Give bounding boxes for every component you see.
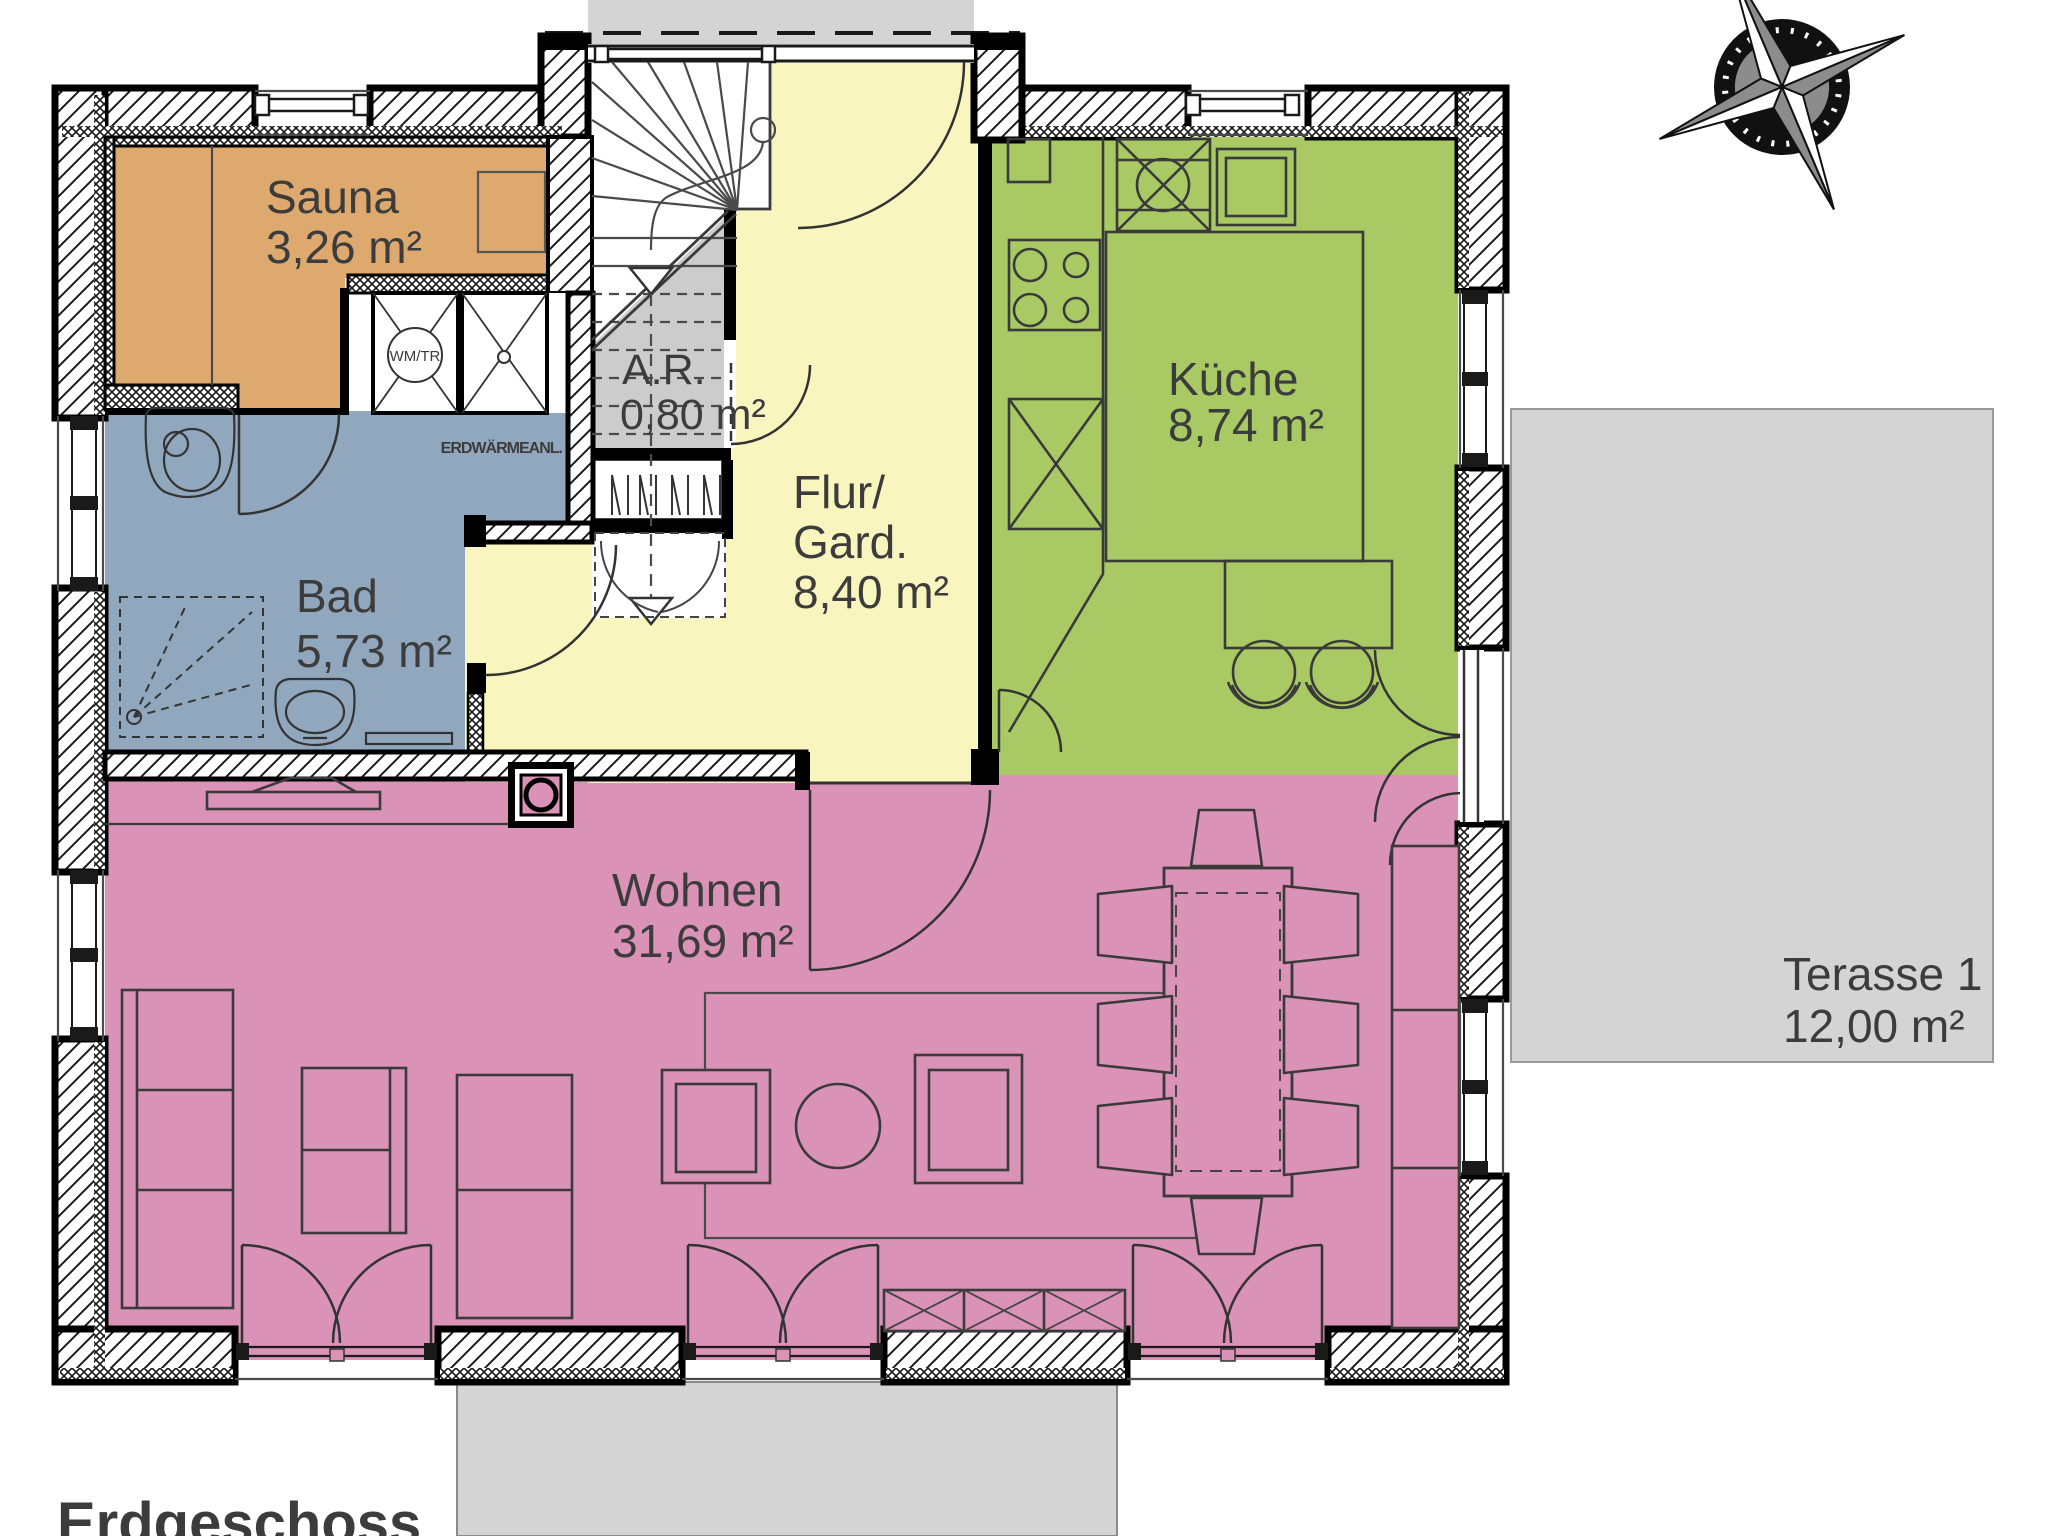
svg-text:3,26 m²: 3,26 m² <box>266 221 422 273</box>
svg-text:ERDWÄRMEANL.: ERDWÄRMEANL. <box>441 439 563 457</box>
svg-text:0,80 m²: 0,80 m² <box>620 391 766 439</box>
svg-text:Sauna: Sauna <box>266 171 399 223</box>
svg-text:Flur/: Flur/ <box>793 466 885 518</box>
svg-text:Gard.: Gard. <box>793 516 908 568</box>
svg-text:12,00 m²: 12,00 m² <box>1783 1000 1965 1052</box>
svg-text:Terasse 1: Terasse 1 <box>1783 948 1982 1000</box>
svg-text:Erdgeschoss: Erdgeschoss <box>57 1491 421 1536</box>
svg-text:Bad: Bad <box>296 570 378 622</box>
svg-text:A.R.: A.R. <box>622 346 706 394</box>
svg-text:8,40 m²: 8,40 m² <box>793 566 949 618</box>
svg-text:5,73 m²: 5,73 m² <box>296 625 452 677</box>
svg-text:WM/TR: WM/TR <box>390 348 441 365</box>
svg-text:Küche: Küche <box>1168 353 1298 405</box>
svg-text:31,69 m²: 31,69 m² <box>612 915 794 967</box>
svg-text:Wohnen: Wohnen <box>612 864 783 916</box>
svg-text:8,74 m²: 8,74 m² <box>1168 399 1324 451</box>
